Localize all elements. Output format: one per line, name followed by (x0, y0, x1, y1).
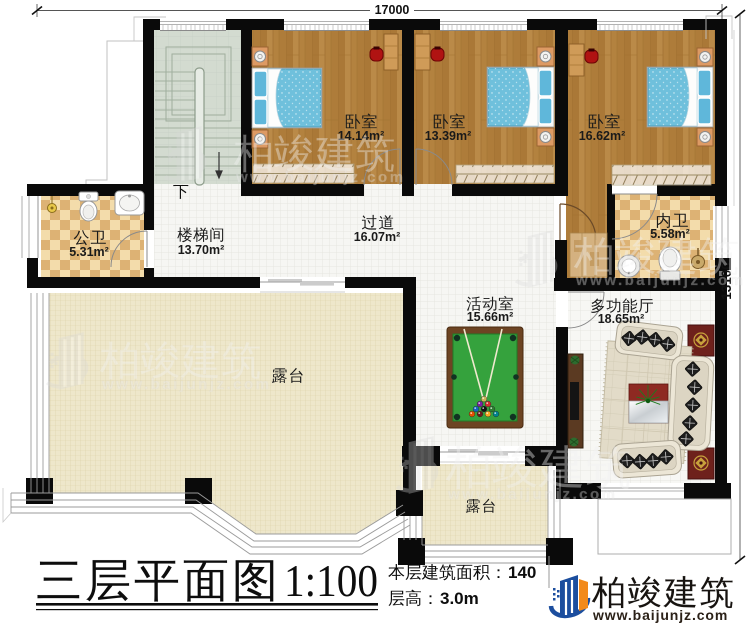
svg-text:1:100: 1:100 (284, 556, 378, 606)
svg-text:13.39m²: 13.39m² (425, 129, 472, 143)
svg-text:www.baijunjz.com: www.baijunjz.com (447, 486, 617, 503)
svg-text:14.14m²: 14.14m² (338, 129, 385, 143)
svg-text:3.0m: 3.0m (440, 589, 479, 608)
svg-text:5.31m²: 5.31m² (69, 245, 109, 259)
svg-text:17000: 17000 (375, 3, 410, 17)
svg-text:www.baijunjz.com: www.baijunjz.com (101, 376, 271, 393)
svg-text:www.baijunjz.com: www.baijunjz.com (575, 272, 745, 289)
svg-text:16.62m²: 16.62m² (579, 129, 626, 143)
svg-text:140: 140 (508, 563, 536, 582)
svg-text:www.baijunjz.com: www.baijunjz.com (592, 607, 728, 623)
svg-text:www.baijunjz.com: www.baijunjz.com (235, 169, 405, 186)
svg-text:15.66m²: 15.66m² (467, 310, 514, 324)
svg-text:13.70m²: 13.70m² (178, 243, 225, 257)
svg-text:18.65m²: 18.65m² (598, 312, 645, 326)
svg-text:5.58m²: 5.58m² (650, 227, 690, 241)
svg-text:16.07m²: 16.07m² (354, 230, 401, 244)
